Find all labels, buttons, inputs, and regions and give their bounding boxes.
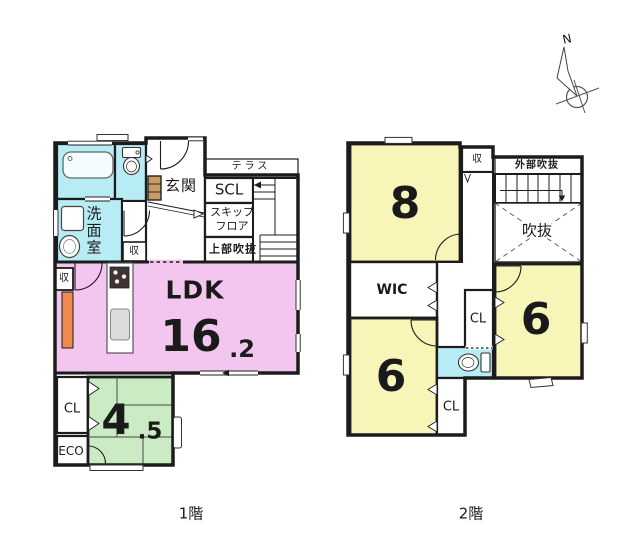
vanity-sink-icon xyxy=(60,236,80,258)
closet-bottom-label: CL xyxy=(443,401,459,414)
kitchen-counter-icon xyxy=(107,263,133,353)
shoe-cabinet-icon xyxy=(148,176,161,200)
closet-mid-label: CL xyxy=(470,313,486,326)
ldk-storage-label: 収 xyxy=(59,274,69,284)
ldk-area-int: 16 xyxy=(160,315,221,359)
upper-void-label: 上部吹抜 xyxy=(209,244,257,255)
washroom-label: 洗面室 xyxy=(86,206,101,257)
balcony-step-mark xyxy=(529,378,553,388)
floor2-caption: 2階 xyxy=(459,507,484,522)
bedroom6-right-area-label: 6 xyxy=(521,298,552,342)
toilet2f-icon xyxy=(459,353,491,372)
floor1-caption: 1階 xyxy=(179,507,204,522)
orange-panel xyxy=(62,292,73,348)
ldk-area-dec: .2 xyxy=(229,337,255,361)
entrance-label: 玄関 xyxy=(165,179,197,194)
scl-label: SCL xyxy=(215,183,243,198)
bathtub-icon xyxy=(63,152,113,178)
washing-machine-icon xyxy=(62,207,84,231)
sink-icon xyxy=(111,309,130,340)
tatami-area-int: 4 xyxy=(101,399,130,441)
tatami-door-leaf xyxy=(174,417,182,448)
storage2f-label: 収 xyxy=(472,155,482,165)
wic-label: WIC xyxy=(377,283,408,297)
bedroom6-left-area-label: 6 xyxy=(376,355,407,399)
floorplan-drawing xyxy=(0,0,640,552)
hall-storage-label: 収 xyxy=(129,247,139,257)
floorplan-page: テラス SCL 玄関 スキップフロア 上部吹抜 洗面室 収 収 LDK 16 .… xyxy=(0,0,640,552)
stairs-2f xyxy=(495,174,582,203)
skip-floor-line2: フロア xyxy=(216,219,249,232)
bedroom8-area-label: 8 xyxy=(390,182,421,226)
stairs-1f xyxy=(253,178,298,262)
skip-floor-label: スキップフロア xyxy=(210,205,254,233)
terrace-label: テラス xyxy=(232,162,271,172)
closet-1f-label: CL xyxy=(64,403,80,416)
ldk-label: LDK xyxy=(165,278,224,303)
compass-needle xyxy=(557,47,577,96)
void-label: 吹抜 xyxy=(520,224,554,239)
eco-label: ECO xyxy=(58,445,83,457)
compass-icon xyxy=(556,47,599,113)
outer-void-label: 外部吹抜 xyxy=(515,161,559,171)
skip-floor-line1: スキップ xyxy=(210,205,254,218)
tatami-area-dec: .5 xyxy=(138,421,163,444)
toilet1f-icon xyxy=(123,148,141,175)
